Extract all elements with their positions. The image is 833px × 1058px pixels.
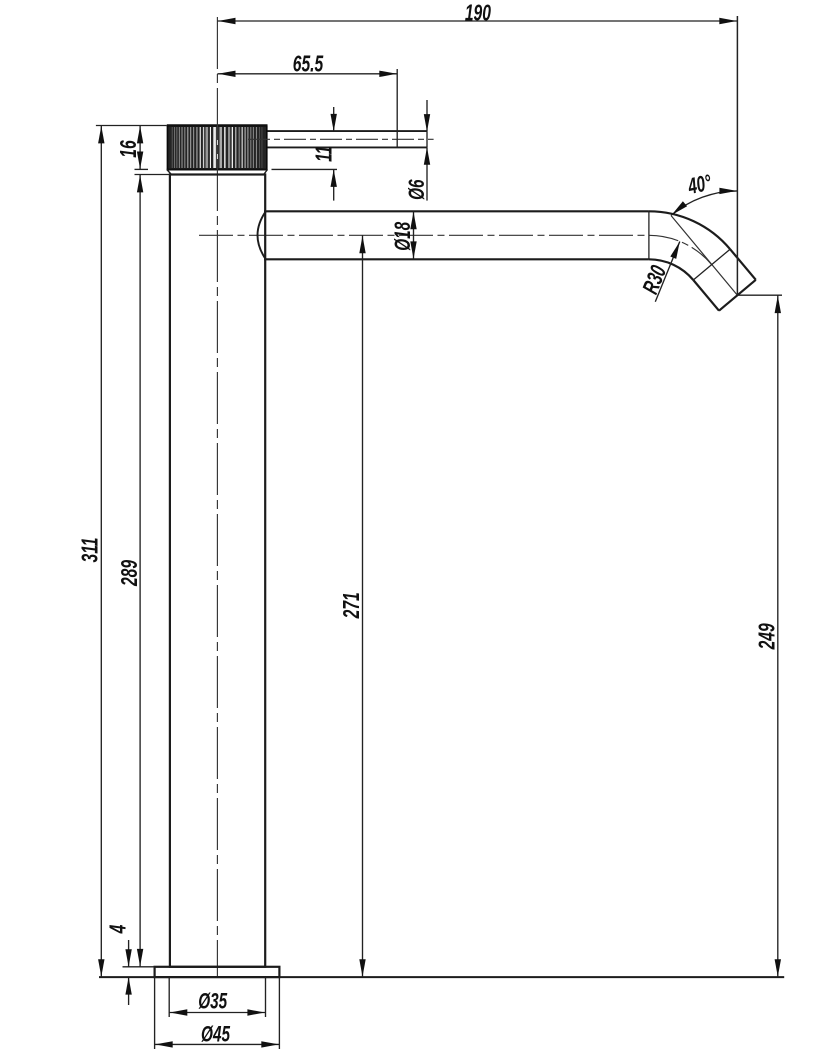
svg-text:65.5: 65.5 (293, 51, 324, 77)
svg-text:4: 4 (106, 925, 132, 935)
svg-text:16: 16 (116, 139, 142, 157)
svg-text:289: 289 (117, 560, 143, 587)
svg-text:271: 271 (339, 592, 365, 619)
svg-text:Ø45: Ø45 (201, 1023, 230, 1048)
svg-text:Ø18: Ø18 (391, 222, 416, 251)
svg-text:190: 190 (465, 0, 491, 26)
svg-text:249: 249 (754, 623, 780, 650)
svg-text:11: 11 (311, 146, 337, 162)
svg-text:Ø6: Ø6 (405, 179, 430, 200)
svg-text:Ø35: Ø35 (198, 990, 227, 1015)
svg-text:311: 311 (78, 538, 104, 563)
